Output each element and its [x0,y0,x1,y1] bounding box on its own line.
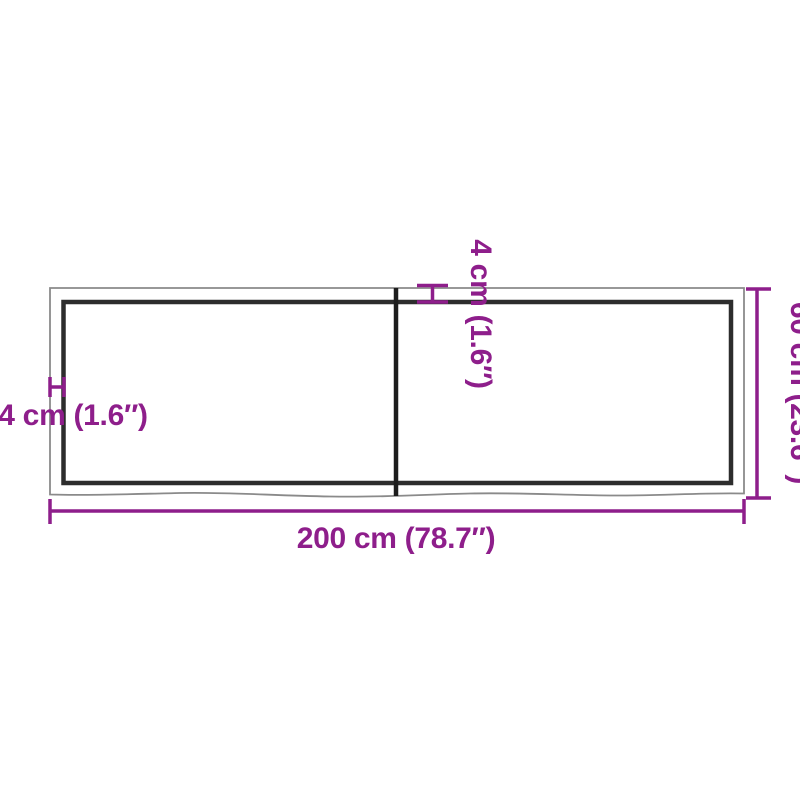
width-dimension-label: 200 cm (78.7″) [297,522,496,555]
width-dimension [50,499,744,524]
dimension-diagram: 200 cm (78.7″) 60 cm (23.6″) 4 cm (1.6″)… [0,0,800,800]
depth-dimension-label: 60 cm (23.6″) [784,302,800,484]
diagram-canvas: 200 cm (78.7″) 60 cm (23.6″) 4 cm (1.6″)… [0,0,800,800]
thickness-top-label: 4 cm (1.6″) [464,239,497,388]
thickness-side-label: 4 cm (1.6″) [0,399,148,432]
depth-dimension [746,289,771,498]
